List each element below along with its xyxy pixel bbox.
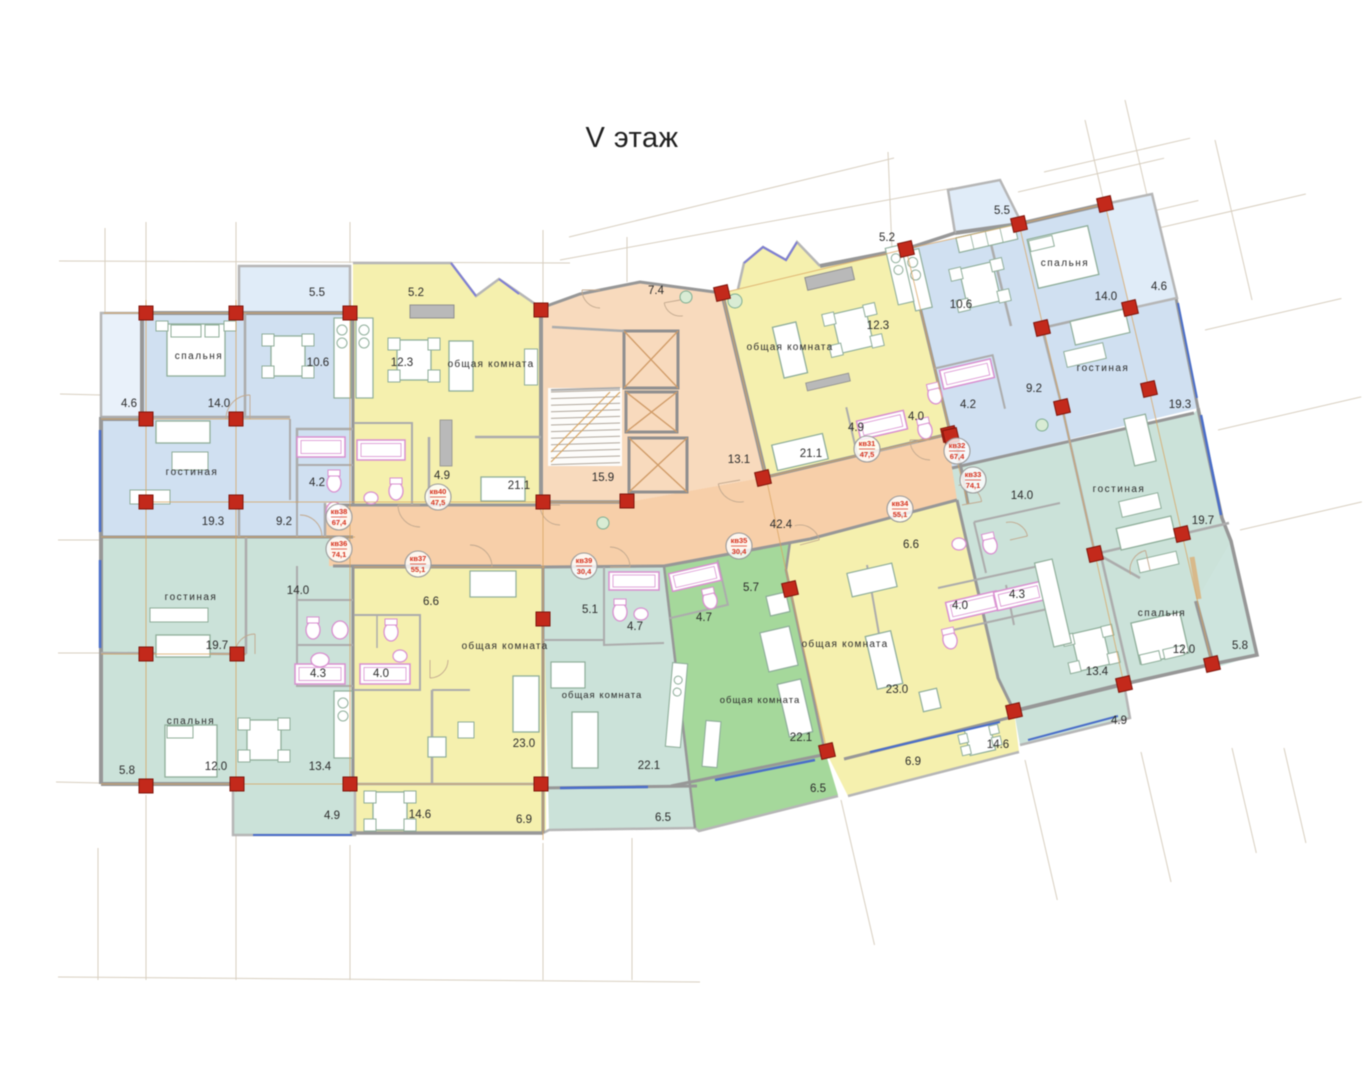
svg-text:74,1: 74,1: [966, 481, 981, 490]
svg-text:19.7: 19.7: [206, 640, 228, 652]
svg-text:6.9: 6.9: [905, 756, 921, 768]
svg-text:6.5: 6.5: [810, 783, 826, 795]
svg-text:4.9: 4.9: [1111, 715, 1127, 727]
svg-text:5.2: 5.2: [408, 287, 424, 299]
svg-text:14.6: 14.6: [987, 739, 1009, 751]
svg-text:спальня: спальня: [1041, 258, 1089, 269]
svg-text:4.0: 4.0: [952, 600, 968, 612]
svg-text:30,4: 30,4: [732, 547, 747, 556]
svg-text:5.2: 5.2: [879, 232, 895, 244]
svg-text:23.0: 23.0: [513, 738, 535, 750]
svg-text:общая комната: общая комната: [802, 638, 889, 650]
svg-text:12.0: 12.0: [1173, 644, 1195, 656]
svg-text:23.0: 23.0: [886, 684, 908, 696]
svg-text:21.1: 21.1: [800, 448, 822, 460]
svg-text:кв39: кв39: [576, 556, 593, 565]
svg-text:6.6: 6.6: [903, 539, 919, 551]
svg-text:гостиная: гостиная: [1077, 363, 1130, 374]
svg-text:кв40: кв40: [430, 487, 447, 496]
svg-text:19.7: 19.7: [1192, 515, 1214, 527]
svg-text:спальня: спальня: [175, 351, 223, 362]
svg-text:12.3: 12.3: [391, 357, 413, 369]
svg-text:гостиная: гостиная: [1093, 484, 1146, 495]
svg-text:22.1: 22.1: [638, 760, 660, 772]
svg-text:12.0: 12.0: [205, 761, 227, 773]
svg-text:6.5: 6.5: [655, 812, 671, 824]
svg-text:общая комната: общая комната: [747, 341, 834, 353]
svg-text:14.0: 14.0: [1011, 490, 1033, 502]
svg-text:13.1: 13.1: [728, 454, 750, 466]
svg-text:14.0: 14.0: [287, 585, 309, 597]
svg-text:13.4: 13.4: [309, 761, 332, 773]
svg-text:кв35: кв35: [731, 536, 748, 545]
svg-text:спальня: спальня: [1138, 608, 1186, 619]
svg-text:67,4: 67,4: [332, 518, 347, 527]
svg-text:74,1: 74,1: [332, 550, 347, 559]
svg-text:14.6: 14.6: [409, 809, 431, 821]
svg-text:15.9: 15.9: [592, 472, 614, 484]
svg-text:5.8: 5.8: [1232, 640, 1248, 652]
svg-text:47,5: 47,5: [431, 498, 446, 507]
svg-text:4.9: 4.9: [324, 810, 340, 822]
svg-text:4.7: 4.7: [696, 612, 712, 624]
svg-text:кв38: кв38: [331, 507, 348, 516]
svg-text:4.9: 4.9: [848, 422, 864, 434]
svg-text:19.3: 19.3: [202, 516, 224, 528]
svg-text:кв37: кв37: [410, 554, 427, 563]
svg-text:21.1: 21.1: [508, 480, 530, 492]
svg-text:общая комната: общая комната: [562, 690, 643, 701]
svg-text:30,4: 30,4: [577, 567, 592, 576]
svg-text:спальня: спальня: [167, 716, 215, 727]
svg-text:13.4: 13.4: [1086, 666, 1109, 678]
svg-text:22.1: 22.1: [790, 732, 812, 744]
svg-text:14.0: 14.0: [1095, 291, 1117, 303]
svg-text:4.9: 4.9: [434, 470, 450, 482]
svg-text:гостиная: гостиная: [165, 592, 218, 603]
svg-text:10.6: 10.6: [950, 299, 972, 311]
svg-text:9.2: 9.2: [276, 516, 292, 528]
svg-text:кв32: кв32: [949, 441, 966, 450]
svg-text:общая комната: общая комната: [462, 640, 549, 652]
svg-text:55,1: 55,1: [411, 565, 426, 574]
svg-text:гостиная: гостиная: [166, 467, 219, 478]
svg-text:4.2: 4.2: [309, 477, 325, 489]
svg-text:4.0: 4.0: [373, 668, 389, 680]
svg-text:47,5: 47,5: [860, 450, 875, 459]
svg-text:4.6: 4.6: [121, 398, 137, 410]
svg-text:4.7: 4.7: [627, 621, 643, 633]
svg-text:19.3: 19.3: [1169, 399, 1191, 411]
svg-text:общая комната: общая комната: [448, 358, 535, 370]
svg-text:10.6: 10.6: [307, 357, 329, 369]
svg-text:5.1: 5.1: [582, 604, 598, 616]
svg-text:55,1: 55,1: [893, 510, 908, 519]
svg-text:14.0: 14.0: [208, 398, 230, 410]
svg-text:кв31: кв31: [859, 439, 876, 448]
svg-text:4.3: 4.3: [1009, 589, 1025, 601]
svg-text:5.7: 5.7: [743, 582, 759, 594]
svg-text:кв34: кв34: [892, 499, 910, 508]
svg-text:42.4: 42.4: [770, 519, 793, 531]
svg-text:67,4: 67,4: [950, 452, 965, 461]
svg-text:кв33: кв33: [965, 470, 982, 479]
svg-text:V этаж: V этаж: [585, 122, 678, 154]
svg-text:кв36: кв36: [331, 539, 348, 548]
svg-text:4.3: 4.3: [310, 668, 326, 680]
svg-text:6.9: 6.9: [516, 814, 532, 826]
svg-text:7.4: 7.4: [648, 285, 665, 297]
svg-text:6.6: 6.6: [423, 596, 439, 608]
svg-text:9.2: 9.2: [1026, 383, 1042, 395]
svg-text:5.5: 5.5: [994, 205, 1010, 217]
svg-text:4.6: 4.6: [1151, 281, 1167, 293]
svg-text:12.3: 12.3: [867, 320, 889, 332]
svg-text:4.2: 4.2: [960, 399, 976, 411]
svg-text:4.0: 4.0: [908, 411, 924, 423]
svg-text:общая комната: общая комната: [720, 695, 801, 706]
svg-text:5.8: 5.8: [119, 765, 135, 777]
svg-text:5.5: 5.5: [309, 287, 325, 299]
